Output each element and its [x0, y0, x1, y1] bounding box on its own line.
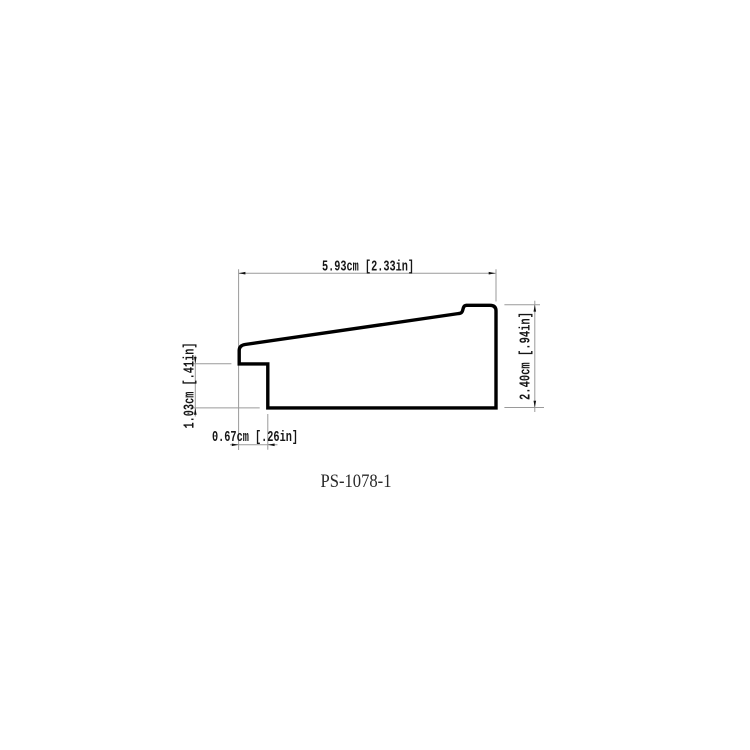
svg-text:PS-1078-1: PS-1078-1 [321, 471, 392, 492]
svg-text:0.67cm [.26in]: 0.67cm [.26in] [212, 430, 298, 446]
svg-text:1.03cm [.41in]: 1.03cm [.41in] [182, 343, 198, 429]
svg-text:5.93cm [2.33in]: 5.93cm [2.33in] [322, 260, 414, 276]
svg-text:2.40cm [.94in]: 2.40cm [.94in] [519, 312, 535, 400]
